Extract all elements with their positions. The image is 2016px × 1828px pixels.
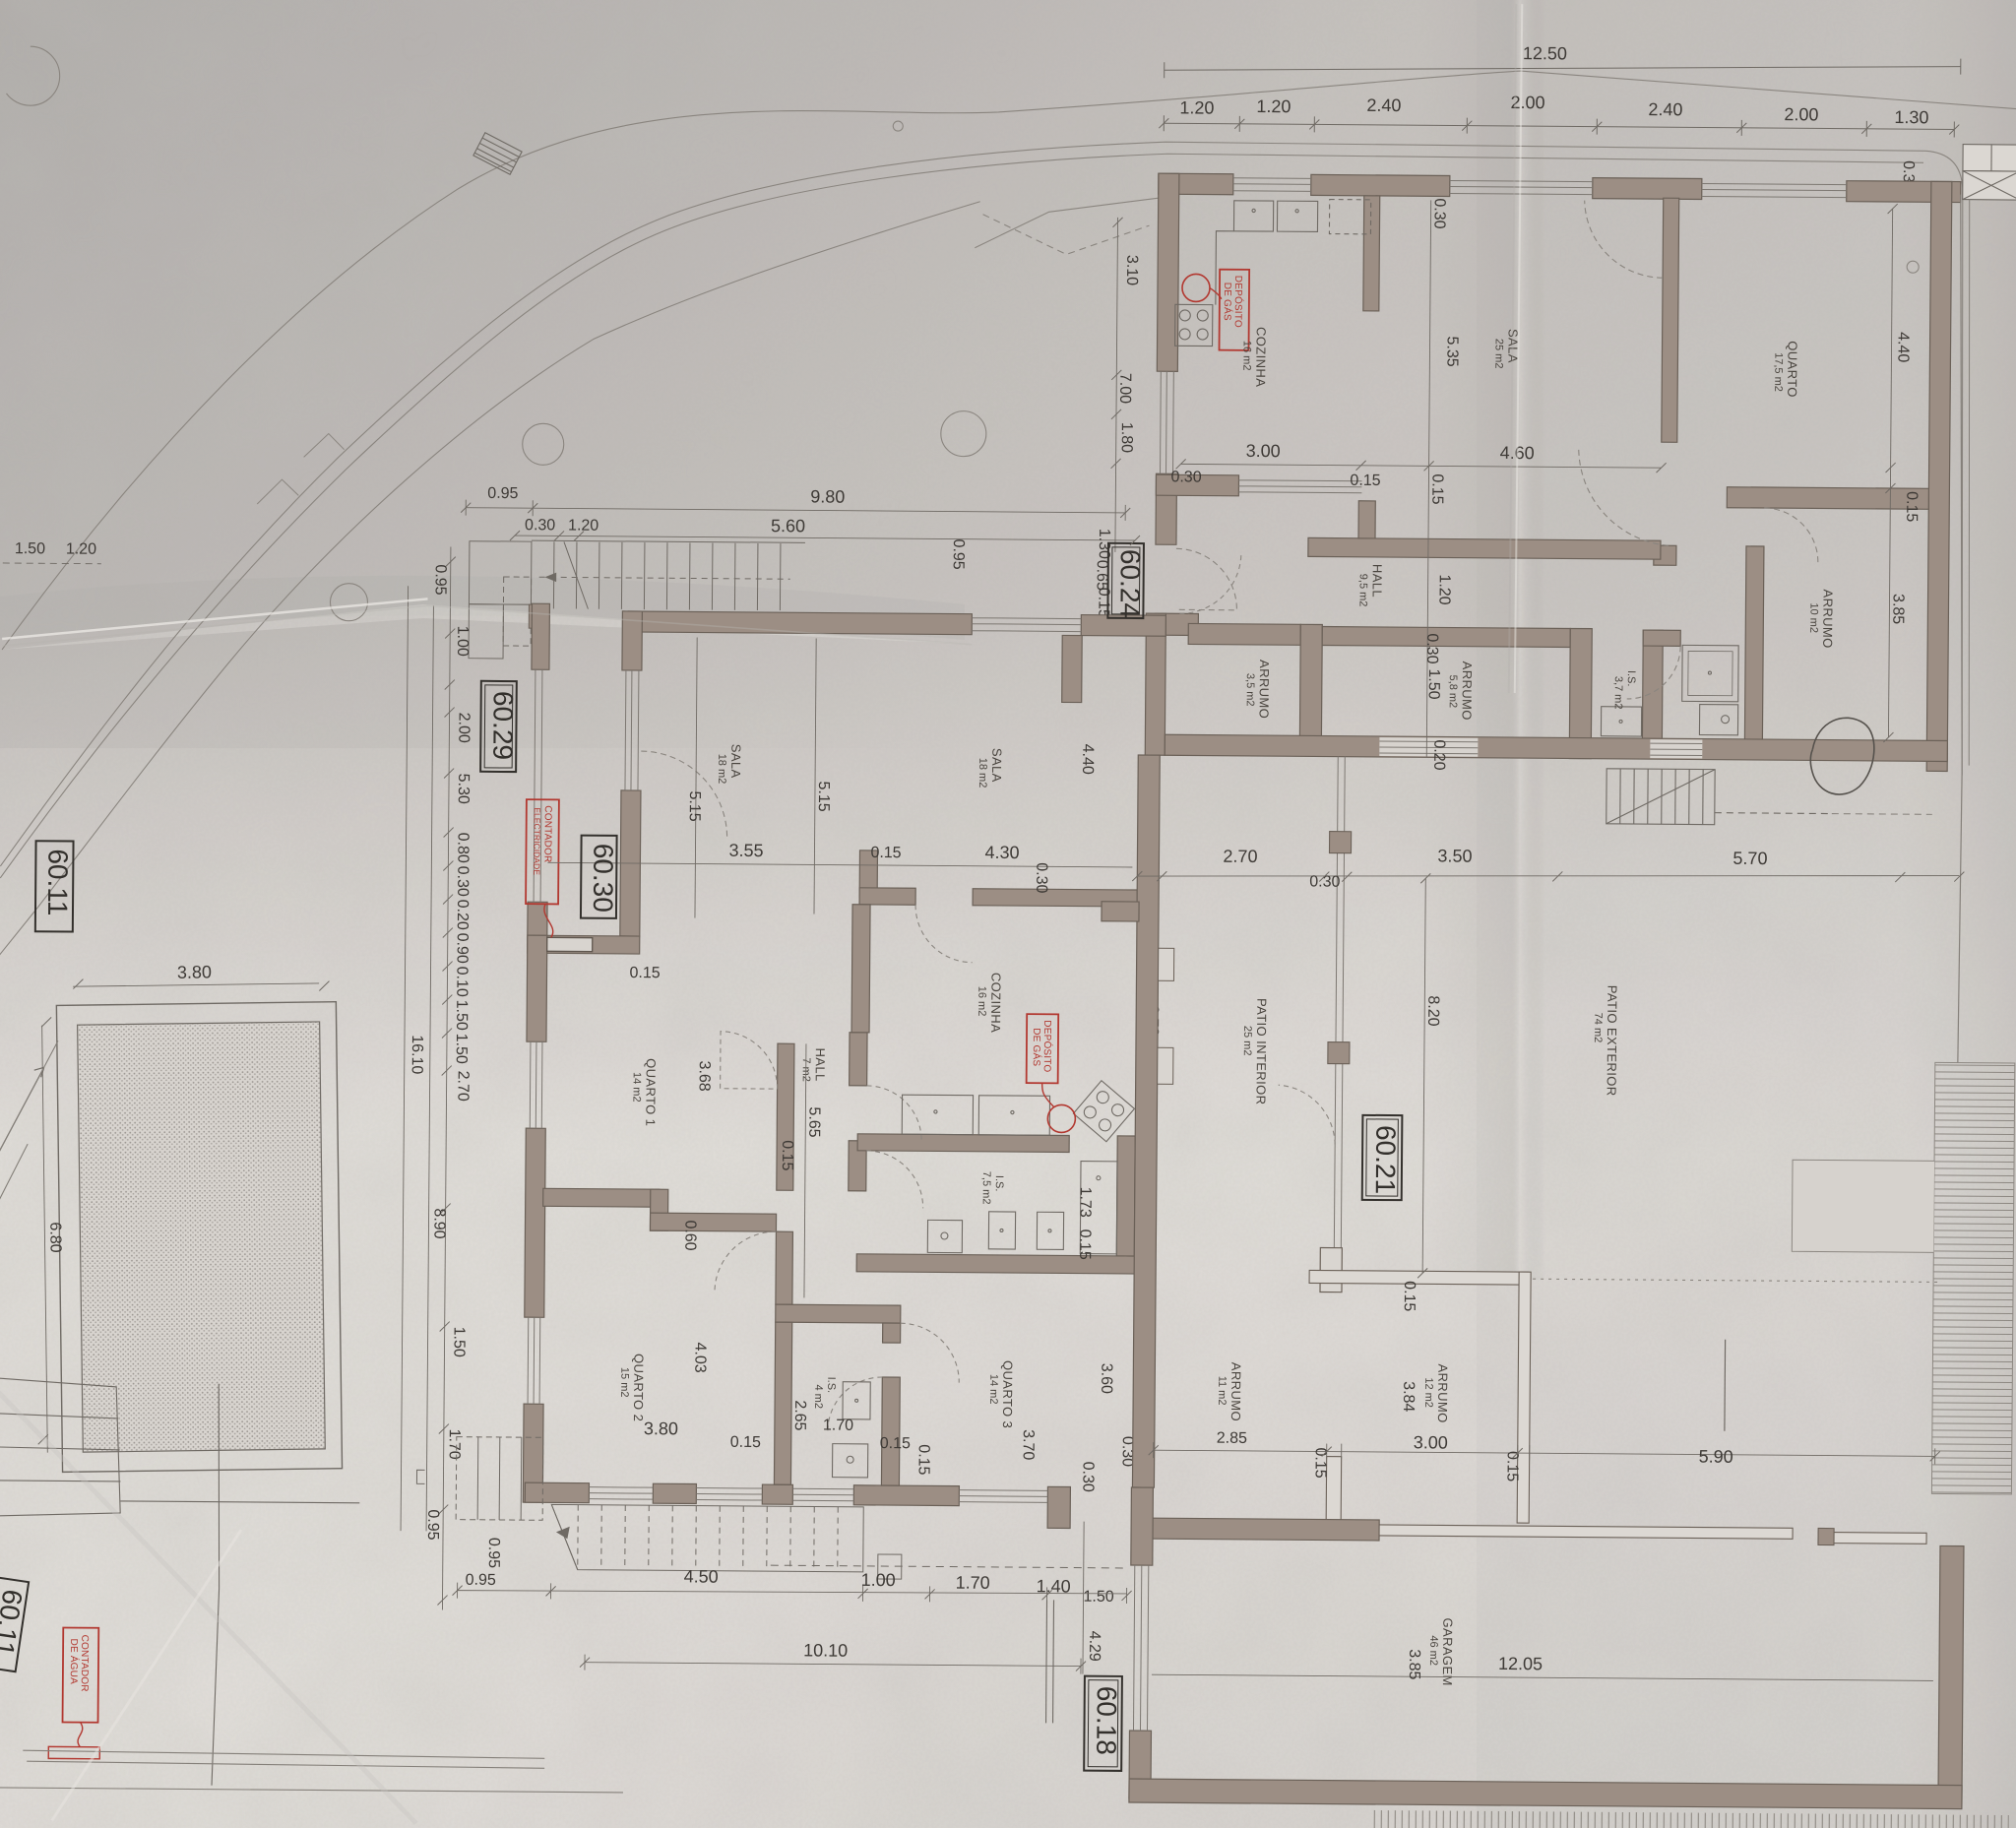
svg-text:5.30: 5.30 (455, 774, 472, 804)
svg-text:4.40: 4.40 (1894, 332, 1911, 362)
svg-text:0.80: 0.80 (454, 833, 471, 863)
svg-text:1.50: 1.50 (450, 1327, 467, 1357)
svg-text:ARRUMO: ARRUMO (1228, 1362, 1243, 1421)
svg-text:16 m2: 16 m2 (976, 986, 987, 1017)
svg-text:GARAGEM: GARAGEM (1440, 1617, 1456, 1685)
svg-text:25 m2: 25 m2 (1241, 1026, 1253, 1056)
svg-text:0.15: 0.15 (915, 1444, 932, 1475)
svg-text:5.70: 5.70 (1732, 849, 1767, 868)
svg-text:QUARTO 3: QUARTO 3 (1000, 1360, 1016, 1428)
svg-text:2.40: 2.40 (1366, 95, 1401, 115)
svg-text:0.95: 0.95 (485, 1538, 502, 1568)
svg-text:0.30: 0.30 (1079, 1462, 1096, 1492)
svg-text:0.20: 0.20 (1430, 739, 1447, 770)
svg-text:25 m2: 25 m2 (1492, 339, 1504, 369)
svg-text:1.50: 1.50 (453, 1000, 470, 1031)
svg-text:60.21: 60.21 (1370, 1125, 1402, 1194)
svg-text:5.65: 5.65 (805, 1106, 822, 1137)
svg-text:1.00: 1.00 (454, 626, 471, 657)
svg-text:0.30: 0.30 (1170, 469, 1201, 485)
svg-text:3.85: 3.85 (1889, 594, 1906, 624)
svg-text:0.90: 0.90 (454, 933, 471, 964)
svg-text:2.40: 2.40 (1648, 99, 1682, 119)
svg-text:0.15: 0.15 (629, 965, 660, 981)
svg-text:5,8 m2: 5,8 m2 (1447, 674, 1459, 708)
svg-text:8.20: 8.20 (1424, 995, 1441, 1026)
svg-text:11 m2: 11 m2 (1216, 1376, 1228, 1406)
svg-text:0.15: 0.15 (880, 1435, 911, 1452)
svg-text:1.40: 1.40 (1037, 1576, 1071, 1596)
svg-text:15 m2: 15 m2 (618, 1367, 630, 1398)
svg-text:10.10: 10.10 (803, 1640, 848, 1660)
svg-text:I.S.: I.S. (1625, 670, 1637, 687)
svg-text:1.30: 1.30 (1894, 107, 1928, 127)
svg-text:0.60: 0.60 (681, 1220, 698, 1250)
svg-text:0.95: 0.95 (466, 1572, 496, 1589)
svg-text:2.85: 2.85 (1217, 1430, 1247, 1447)
svg-text:18 m2: 18 m2 (976, 758, 988, 788)
svg-text:ELECTRICIDADE: ELECTRICIDADE (532, 807, 542, 875)
svg-text:0.15: 0.15 (1095, 588, 1111, 618)
svg-text:74 m2: 74 m2 (1592, 1013, 1604, 1043)
svg-text:10 m2: 10 m2 (1807, 602, 1819, 633)
svg-text:12.50: 12.50 (1523, 43, 1567, 63)
svg-text:4.50: 4.50 (684, 1566, 719, 1586)
svg-text:2.70: 2.70 (1223, 847, 1257, 866)
svg-text:5.35: 5.35 (1443, 336, 1460, 366)
svg-text:3.00: 3.00 (1414, 1432, 1448, 1452)
svg-text:0.15: 0.15 (730, 1434, 761, 1451)
svg-text:2.00: 2.00 (1784, 104, 1818, 124)
svg-text:3.00: 3.00 (1246, 441, 1281, 461)
svg-text:PATIO EXTERIOR: PATIO EXTERIOR (1605, 985, 1620, 1097)
svg-text:HALL: HALL (813, 1047, 828, 1081)
svg-text:DE ÁGUA: DE ÁGUA (68, 1639, 81, 1685)
svg-text:0.30: 0.30 (1430, 198, 1447, 228)
svg-text:0.30: 0.30 (1033, 862, 1049, 893)
svg-text:3.55: 3.55 (728, 841, 763, 860)
svg-text:0.95: 0.95 (432, 564, 449, 595)
svg-text:14 m2: 14 m2 (987, 1374, 999, 1405)
svg-text:5.90: 5.90 (1699, 1447, 1733, 1467)
svg-text:46 m2: 46 m2 (1427, 1635, 1439, 1666)
svg-text:0.30: 0.30 (525, 517, 555, 534)
svg-text:2.65: 2.65 (791, 1400, 808, 1430)
svg-text:ARRUMO: ARRUMO (1820, 589, 1835, 648)
svg-text:0.15: 0.15 (1428, 473, 1445, 504)
svg-text:60.24: 60.24 (1114, 549, 1146, 618)
svg-text:HALL: HALL (1370, 564, 1385, 598)
svg-text:8.90: 8.90 (430, 1208, 447, 1238)
svg-text:3.70: 3.70 (1020, 1429, 1037, 1460)
svg-text:1.00: 1.00 (861, 1570, 896, 1590)
svg-text:ARRUMO: ARRUMO (1460, 662, 1475, 721)
svg-text:QUARTO 2: QUARTO 2 (631, 1354, 647, 1421)
svg-text:1.70: 1.70 (956, 1573, 990, 1593)
svg-text:1.50: 1.50 (453, 1034, 470, 1064)
svg-text:DEPÓSITO: DEPÓSITO (1041, 1020, 1054, 1072)
svg-text:16.10: 16.10 (409, 1035, 425, 1074)
svg-text:3.80: 3.80 (644, 1418, 678, 1438)
svg-text:0.15: 0.15 (870, 845, 901, 861)
svg-text:60.18: 60.18 (1091, 1686, 1122, 1755)
svg-text:I.S.: I.S. (993, 1175, 1005, 1192)
svg-text:4.30: 4.30 (984, 843, 1019, 862)
svg-text:2.70: 2.70 (454, 1071, 471, 1102)
svg-text:1.50: 1.50 (1083, 1589, 1113, 1606)
svg-text:3.85: 3.85 (1406, 1649, 1422, 1679)
svg-text:0.95: 0.95 (424, 1509, 441, 1540)
svg-text:1.50: 1.50 (15, 540, 45, 557)
svg-text:12 m2: 12 m2 (1422, 1377, 1434, 1408)
svg-text:18 m2: 18 m2 (716, 754, 727, 785)
svg-text:CONTADOR: CONTADOR (541, 805, 552, 862)
svg-text:9,5 m2: 9,5 m2 (1356, 574, 1368, 607)
svg-text:5.15: 5.15 (686, 790, 703, 821)
svg-text:1.20: 1.20 (1435, 574, 1452, 604)
svg-text:3.60: 3.60 (1098, 1363, 1114, 1394)
svg-text:COZINHA: COZINHA (988, 973, 1003, 1033)
svg-text:3.84: 3.84 (1400, 1381, 1417, 1412)
svg-text:COZINHA: COZINHA (1253, 327, 1268, 387)
svg-text:DE GÁS: DE GÁS (1031, 1028, 1043, 1066)
svg-text:0.15: 0.15 (1076, 1229, 1093, 1260)
svg-text:60.30: 60.30 (588, 844, 619, 913)
svg-text:0.15: 0.15 (779, 1140, 795, 1170)
svg-text:ARRUMO: ARRUMO (1435, 1363, 1450, 1422)
svg-text:0.15: 0.15 (1350, 473, 1380, 489)
svg-text:5.60: 5.60 (771, 516, 805, 536)
svg-text:3,7 m2: 3,7 m2 (1612, 676, 1624, 710)
svg-text:3.50: 3.50 (1437, 846, 1472, 865)
svg-text:4.29: 4.29 (1086, 1631, 1102, 1662)
svg-text:4.03: 4.03 (691, 1342, 708, 1372)
svg-text:2.00: 2.00 (455, 713, 472, 743)
svg-text:4 m2: 4 m2 (812, 1384, 824, 1409)
svg-text:PATIO INTERIOR: PATIO INTERIOR (1253, 998, 1269, 1105)
svg-text:3.80: 3.80 (177, 962, 212, 981)
svg-text:5.15: 5.15 (815, 781, 832, 811)
svg-text:SALA: SALA (989, 748, 1004, 783)
svg-text:3.10: 3.10 (1123, 255, 1140, 285)
svg-text:16 m2: 16 m2 (1240, 341, 1252, 371)
svg-text:DE GÁS: DE GÁS (1222, 283, 1234, 321)
svg-text:DEPÓSITO: DEPÓSITO (1232, 276, 1245, 328)
svg-text:1.50: 1.50 (1425, 668, 1442, 699)
svg-text:17,5 m2: 17,5 m2 (1772, 352, 1784, 392)
svg-text:0.30: 0.30 (454, 866, 471, 897)
svg-text:1.70: 1.70 (823, 1418, 853, 1434)
svg-text:60.29: 60.29 (487, 691, 519, 760)
svg-text:1.20: 1.20 (1256, 96, 1291, 116)
svg-text:7,5 m2: 7,5 m2 (980, 1171, 992, 1205)
svg-text:3.68: 3.68 (696, 1061, 713, 1092)
svg-text:0.10: 0.10 (453, 967, 470, 997)
svg-text:7.00: 7.00 (1116, 373, 1133, 404)
svg-text:6.80: 6.80 (46, 1222, 63, 1252)
svg-text:ARRUMO: ARRUMO (1257, 660, 1272, 719)
svg-text:0.95: 0.95 (950, 539, 967, 570)
svg-text:0.95: 0.95 (487, 485, 518, 502)
svg-text:9.80: 9.80 (810, 486, 845, 506)
svg-text:1.20: 1.20 (1179, 97, 1214, 117)
svg-text:0.30: 0.30 (1423, 633, 1440, 663)
svg-text:3,5 m2: 3,5 m2 (1244, 673, 1256, 707)
svg-text:1.70: 1.70 (446, 1429, 463, 1460)
svg-text:0.15: 0.15 (1503, 1451, 1520, 1481)
svg-text:1.20: 1.20 (66, 540, 96, 557)
svg-text:QUARTO 1: QUARTO 1 (643, 1058, 659, 1126)
svg-text:1.80: 1.80 (1118, 422, 1135, 453)
svg-text:SALA: SALA (728, 744, 743, 779)
svg-text:4.40: 4.40 (1079, 744, 1096, 775)
svg-text:I.S.: I.S. (825, 1377, 837, 1394)
svg-text:QUARTO: QUARTO (1785, 341, 1799, 398)
svg-text:14 m2: 14 m2 (630, 1072, 642, 1103)
svg-text:CONTADOR: CONTADOR (79, 1635, 90, 1692)
svg-text:0.15: 0.15 (1903, 491, 1920, 522)
svg-text:0.15: 0.15 (1401, 1281, 1417, 1311)
svg-text:0.20: 0.20 (454, 900, 471, 930)
svg-text:60.11: 60.11 (42, 849, 74, 915)
svg-text:1.73: 1.73 (1077, 1187, 1094, 1218)
svg-text:12.05: 12.05 (1498, 1654, 1543, 1673)
